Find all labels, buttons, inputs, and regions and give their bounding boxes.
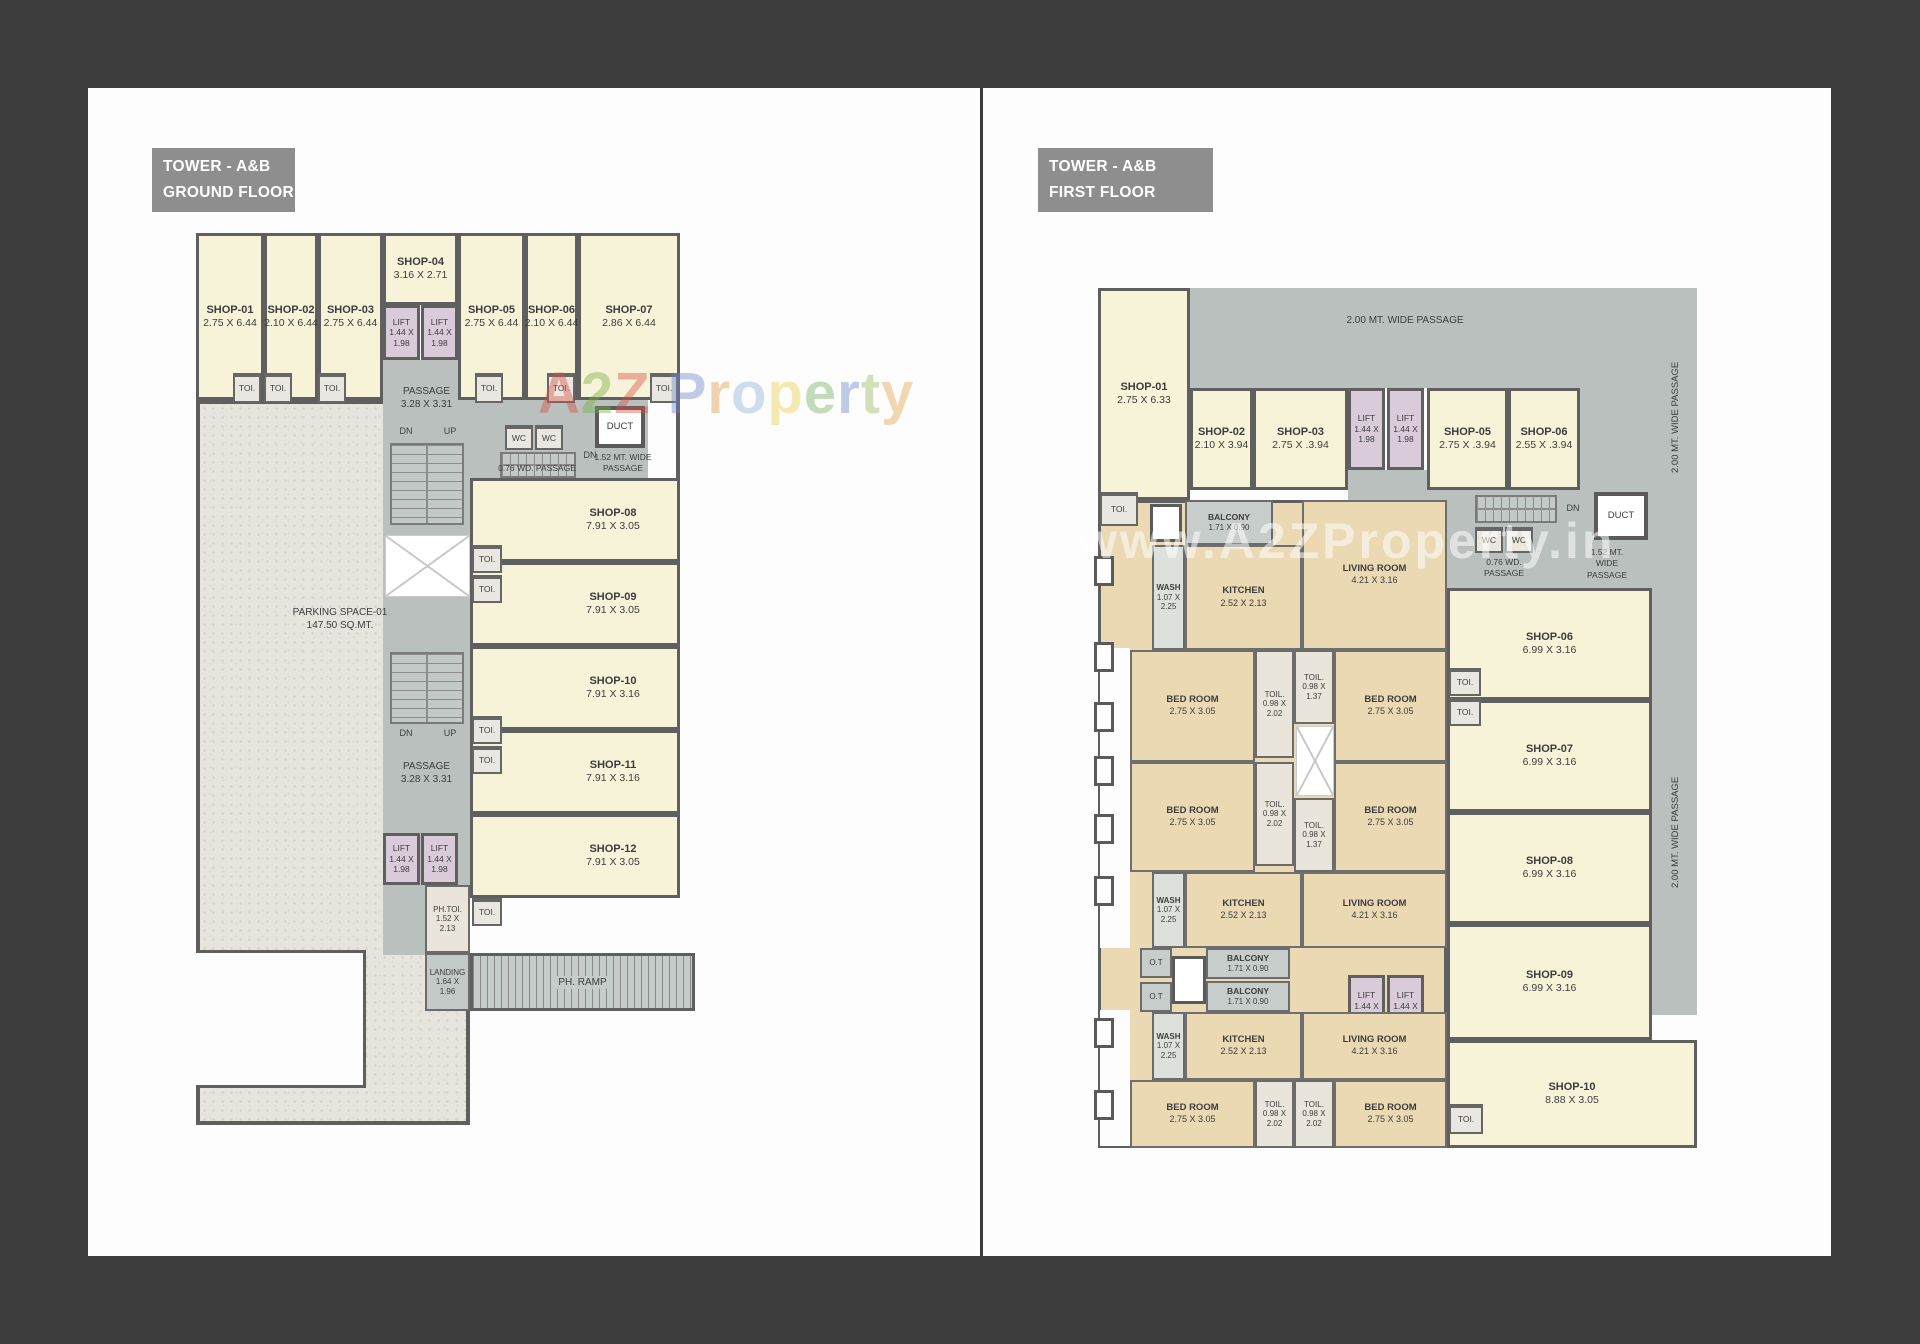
watermark-site: www.A2ZProperty.in	[1078, 512, 1615, 570]
lift-lift: LIFT1.44 X1.98	[1348, 388, 1385, 470]
wc-wc: WC	[505, 425, 533, 450]
void-36	[385, 535, 470, 597]
wbox-80	[1094, 1018, 1114, 1048]
room-dims: 6.99 X 3.16	[1523, 644, 1577, 658]
room-name: BALCONY	[1227, 986, 1269, 997]
lift-lift: LIFT1.44 X1.98	[421, 305, 458, 360]
room-name: LANDING	[430, 968, 466, 978]
room-dims: 6.99 X 3.16	[1523, 756, 1577, 770]
room-name: SHOP-06	[1526, 630, 1573, 644]
room-dims: 7.91 X 3.16	[586, 772, 640, 786]
room-dims: 1.98	[431, 338, 448, 349]
room-dims: 1.52 X	[436, 914, 459, 924]
toi-toi: TOI.	[318, 373, 346, 403]
room-name: 1.52 MT. WIDE	[594, 452, 651, 463]
room-dims: 2.02	[1267, 819, 1283, 829]
room-dims: 1.44 X	[427, 854, 452, 865]
slabel-dn: DN	[392, 728, 420, 740]
room-dims: 1.98	[1397, 434, 1414, 445]
toil-toil: TOIL.0.98 X2.02	[1255, 650, 1294, 758]
watermark-letter: Z	[614, 361, 650, 426]
notch-1	[196, 950, 366, 1088]
title-line-1: TOWER - A&B	[1049, 154, 1213, 180]
wbox-78	[1094, 814, 1114, 844]
room-name: TOI.	[239, 383, 255, 394]
room-dims: 2.55 X .3.94	[1516, 439, 1573, 453]
room-dims: 1.44 X	[1354, 1001, 1379, 1012]
room-name: TOI.	[270, 383, 286, 394]
room-name: TOIL.	[1265, 1100, 1285, 1110]
room-dims: 2.75 X 3.05	[1169, 817, 1215, 829]
room-dims: 2.02	[1306, 1119, 1322, 1129]
room-dims: 2.75 X 3.05	[1367, 706, 1413, 718]
room-name: BED ROOM	[1166, 1102, 1218, 1114]
room-name: SHOP-12	[589, 842, 636, 856]
room-name: TOI.	[1457, 677, 1473, 688]
room-name: TOI.	[1457, 707, 1473, 718]
room-living-room: LIVING ROOM4.21 X 3.16	[1302, 872, 1447, 948]
watermark-letter: y	[881, 361, 914, 426]
floor-plan-canvas: TOWER - A&B GROUND FLOOR TOWER - A&B FIR…	[0, 0, 1920, 1344]
plabel-2-00-mt-wide-passage: 2.00 MT. WIDE PASSAGE	[1240, 312, 1570, 328]
room-name: TOI.	[479, 907, 495, 918]
room-name: LIFT	[393, 843, 410, 854]
grayblk-2	[1580, 388, 1652, 490]
title-line-1: TOWER - A&B	[163, 154, 295, 180]
room-dims: 0.98 X	[1302, 830, 1325, 840]
room-name: BED ROOM	[1364, 805, 1416, 817]
toi-toi: TOI.	[264, 373, 292, 403]
room-name: TOIL.	[1265, 800, 1285, 810]
toi-toi: TOI.	[472, 575, 502, 603]
room-name: 2.00 MT. WIDE PASSAGE	[1346, 314, 1463, 327]
first-floor-title: TOWER - A&B FIRST FLOOR	[1038, 148, 1213, 212]
room-name: BED ROOM	[1166, 694, 1218, 706]
room-bed-room: BED ROOM2.75 X 3.05	[1334, 1080, 1447, 1148]
room-dims: 8.88 X 3.05	[1545, 1094, 1599, 1108]
room-name: 0.76 WD. PASSAGE	[498, 463, 576, 474]
shop-shop-03: SHOP-032.75 X .3.94	[1253, 388, 1348, 490]
room-dims: 4.21 X 3.16	[1351, 575, 1397, 587]
room-name: SHOP-10	[589, 674, 636, 688]
room-name: BALCONY	[1227, 953, 1269, 964]
ot-o-t: O.T	[1140, 982, 1172, 1012]
room-bed-room: BED ROOM2.75 X 3.05	[1130, 1080, 1255, 1148]
room-kitchen: KITCHEN2.52 X 2.13	[1185, 1012, 1302, 1080]
watermark-letter: r	[707, 361, 731, 426]
room-dims: 2.75 X 3.05	[1367, 817, 1413, 829]
room-dims: 2.25	[1161, 602, 1177, 612]
room-living-room: LIVING ROOM4.21 X 3.16	[1302, 1012, 1447, 1080]
wbox-75	[1094, 642, 1114, 672]
room-name: TOI.	[1458, 1114, 1474, 1125]
room-dims: 1.98	[393, 864, 410, 875]
room-dims: 1.44 X	[389, 327, 414, 338]
wbox-77	[1094, 756, 1114, 786]
toi-toi: TOI.	[472, 898, 502, 926]
room-dims: 2.25	[1161, 915, 1177, 925]
toi-toi: TOI.	[1449, 1104, 1483, 1134]
room-dims: 2.52 X 2.13	[1220, 598, 1266, 610]
room-dims: 1.44 X	[1393, 424, 1418, 435]
room-dims: 3.28 X 3.31	[401, 398, 452, 411]
room-name: LIFT	[431, 317, 448, 328]
room-name: LIFT	[1358, 413, 1375, 424]
room-dims: 2.75 X 3.05	[1169, 706, 1215, 718]
lift-lift: LIFT1.44 X1.98	[1387, 388, 1424, 470]
room-name: SHOP-07	[1526, 742, 1573, 756]
watermark-brand: A2Z Property	[538, 360, 914, 427]
room-bed-room: BED ROOM2.75 X 3.05	[1130, 650, 1255, 762]
room-name: PARKING SPACE-01	[293, 606, 388, 619]
room-name: TOI.	[479, 725, 495, 736]
room-bed-room: BED ROOM2.75 X 3.05	[1130, 762, 1255, 872]
shop-shop-04: SHOP-043.16 X 2.71	[383, 233, 458, 305]
room-dims: 6.99 X 3.16	[1523, 982, 1577, 996]
plabel-passage: PASSAGE3.28 X 3.31	[383, 383, 470, 413]
room-dims: 1.98	[431, 864, 448, 875]
shop-shop-01: SHOP-012.75 X 6.33	[1098, 288, 1190, 500]
stair-v-39	[390, 652, 464, 724]
watermark-letter: t	[861, 361, 881, 426]
toi-toi: TOI.	[475, 373, 503, 403]
toil-ph-toi: PH.TOI.1.52 X2.13	[425, 885, 470, 953]
watermark-letter	[651, 361, 668, 426]
room-name: TOIL.	[1304, 821, 1324, 831]
room-dims: 0.98 X	[1302, 682, 1325, 692]
room-dims: 1.71 X 0.90	[1228, 997, 1269, 1007]
room-dims: 2.13	[440, 924, 456, 934]
room-name: SHOP-01	[206, 303, 253, 317]
room-name: SHOP-05	[468, 303, 515, 317]
room-dims: 0.98 X	[1263, 809, 1286, 819]
room-name: LIFT	[1397, 413, 1414, 424]
room-name: SHOP-01	[1120, 380, 1167, 394]
room-dims: 2.75 X 6.33	[1117, 394, 1171, 408]
wc-wc: WC	[535, 425, 563, 450]
room-dims: 2.86 X 6.44	[602, 317, 656, 331]
room-dims: 147.50 SQ.MT.	[307, 619, 374, 632]
room-name: O.T	[1149, 992, 1162, 1002]
room-dims: 2.10 X 6.44	[264, 317, 318, 331]
room-dims: 1.96	[440, 987, 456, 997]
wbox-79	[1094, 876, 1114, 906]
room-name: SHOP-06	[1520, 425, 1567, 439]
wash-wash: WASH1.07 X2.25	[1152, 872, 1185, 948]
grayblk2-landing: LANDING1.64 X1.96	[425, 953, 470, 1011]
room-name: TOI.	[481, 383, 497, 394]
room-dims: 1.98	[1358, 434, 1375, 445]
room-name: WASH	[1157, 583, 1181, 593]
room-dims: 1.44 X	[1354, 424, 1379, 435]
ot-o-t: O.T	[1140, 948, 1172, 978]
room-dims: 2.52 X 2.13	[1220, 910, 1266, 922]
room-name: SHOP-06	[528, 303, 575, 317]
watermark-letter: p	[767, 361, 803, 426]
toi-toi: TOI.	[472, 716, 502, 744]
room-name: LIFT	[431, 843, 448, 854]
room-name: SHOP-08	[1526, 854, 1573, 868]
room-dims: 2.75 X .3.94	[1272, 439, 1329, 453]
ground-floor-title: TOWER - A&B GROUND FLOOR	[152, 148, 295, 212]
room-name: DN	[400, 728, 413, 740]
room-dims: 1.44 X	[1393, 1001, 1418, 1012]
room-dims: 2.75 X 6.44	[465, 317, 519, 331]
toil-toil: TOIL.0.98 X2.02	[1255, 762, 1294, 866]
toi-toi: TOI.	[472, 545, 502, 573]
room-dims: 1.44 X	[389, 854, 414, 865]
toi-toi: TOI.	[1449, 698, 1481, 726]
room-dims: 7.91 X 3.05	[586, 604, 640, 618]
room-name: TOIL.	[1265, 690, 1285, 700]
room-name: WASH	[1157, 896, 1181, 906]
room-name: PH.TOI.	[433, 905, 462, 915]
toi-toi: TOI.	[233, 373, 261, 403]
slabel-up: UP	[436, 426, 464, 438]
toil-toil: TOIL.0.98 X1.37	[1294, 650, 1334, 724]
room-dims: 7.91 X 3.05	[586, 520, 640, 534]
room-name: SHOP-05	[1444, 425, 1491, 439]
lift-lift: LIFT1.44 X1.98	[383, 833, 420, 885]
room-dims: 1.07 X	[1157, 1041, 1180, 1051]
ramp-ph-ramp: PH. RAMP	[470, 953, 695, 1011]
flabel3-1-52-mt-wide: 1.52 MT. WIDEPASSAGE	[584, 450, 662, 476]
room-dims: 1.37	[1306, 692, 1322, 702]
room-name: TOI.	[324, 383, 340, 394]
room-name: SHOP-10	[1548, 1080, 1595, 1094]
room-dims: 2.75 X 6.44	[324, 317, 378, 331]
room-dims: 2.75 X 6.44	[203, 317, 257, 331]
room-dims: 3.16 X 2.71	[394, 269, 448, 283]
room-name: LIFT	[393, 317, 410, 328]
room-dims: 1.07 X	[1157, 593, 1180, 603]
wbox-64	[1172, 956, 1206, 1004]
room-dims: 2.75 X 3.05	[1169, 1114, 1215, 1126]
watermark-letter: r	[837, 361, 861, 426]
room-dims: 2.75 X .3.94	[1439, 439, 1496, 453]
balcony-balcony: BALCONY1.71 X 0.90	[1206, 948, 1290, 979]
room-dims: 1.98	[393, 338, 410, 349]
toil-toil: TOIL.0.98 X1.37	[1294, 798, 1334, 872]
room-name: SHOP-07	[605, 303, 652, 317]
room-dims: 2.02	[1267, 709, 1283, 719]
shop-shop-06: SHOP-062.55 X .3.94	[1508, 388, 1580, 490]
shop-shop-10: SHOP-108.88 X 3.05	[1447, 1040, 1697, 1148]
watermark-letter: A	[538, 361, 581, 426]
room-dims: 7.91 X 3.05	[586, 856, 640, 870]
room-name: PH. RAMP	[554, 976, 610, 989]
room-dims: 1.37	[1306, 840, 1322, 850]
room-dims: 2.10 X 3.94	[1195, 439, 1249, 453]
room-dims: 2.52 X 2.13	[1220, 1046, 1266, 1058]
shop-shop-09: SHOP-096.99 X 3.16	[1447, 924, 1652, 1040]
watermark-letter: o	[731, 361, 767, 426]
room-name: BED ROOM	[1364, 694, 1416, 706]
room-name: TOI.	[479, 554, 495, 565]
room-dims: 2.02	[1267, 1119, 1283, 1129]
room-dims: 1.64 X	[436, 977, 459, 987]
room-name: SHOP-09	[589, 590, 636, 604]
toi-toi: TOI.	[472, 746, 502, 774]
watermark-letter: 2	[581, 361, 614, 426]
room-dims: 4.21 X 3.16	[1351, 1046, 1397, 1058]
toil-toil: TOIL.0.98 X2.02	[1255, 1080, 1294, 1148]
plabel-passage: PASSAGE3.28 X 3.31	[383, 758, 470, 788]
flabel-0-76-wd-passage: 0.76 WD. PASSAGE	[487, 463, 587, 475]
room-name: SHOP-03	[327, 303, 374, 317]
room-name: SHOP-02	[267, 303, 314, 317]
shopR-shop-12: SHOP-127.91 X 3.05	[470, 814, 680, 898]
room-name: WC	[512, 433, 526, 444]
room-kitchen: KITCHEN2.52 X 2.13	[1185, 872, 1302, 948]
shop-shop-05: SHOP-052.75 X .3.94	[1427, 388, 1508, 490]
room-name: 2.00 MT. WIDE PASSAGE	[1670, 777, 1682, 888]
room-name: SHOP-11	[590, 758, 636, 772]
title-line-2: GROUND FLOOR	[163, 180, 295, 206]
room-dims: 1.07 X	[1157, 905, 1180, 915]
room-name: SHOP-02	[1198, 425, 1245, 439]
room-dims: 7.91 X 3.16	[586, 688, 640, 702]
room-name: LIVING ROOM	[1343, 1034, 1407, 1046]
room-name: UP	[444, 728, 457, 740]
toil-toil: TOIL.0.98 X2.02	[1294, 1080, 1334, 1148]
room-dims: 0.98 X	[1302, 1109, 1325, 1119]
room-dims: 2.10 X 6.44	[525, 317, 579, 331]
room-bed-room: BED ROOM2.75 X 3.05	[1334, 650, 1447, 762]
vlabel-2-00-mt-wide-passage: 2.00 MT. WIDE PASSAGE	[1661, 325, 1691, 510]
room-name: LIFT	[1397, 990, 1414, 1001]
room-dims: 2.75 X 3.05	[1367, 1114, 1413, 1126]
room-name: SHOP-09	[1526, 968, 1573, 982]
room-name: LIFT	[1358, 990, 1375, 1001]
room-name: TOIL.	[1304, 1100, 1324, 1110]
room-dims: 3.28 X 3.31	[401, 773, 452, 786]
plabel-parking-space-01: PARKING SPACE-01147.50 SQ.MT.	[225, 602, 455, 636]
room-name: DN	[400, 426, 413, 438]
room-name: PASSAGE	[403, 385, 450, 398]
room-name: SHOP-08	[589, 506, 636, 520]
room-name: WC	[542, 433, 556, 444]
room-name: SHOP-04	[397, 255, 444, 269]
room-name: TOI.	[479, 755, 495, 766]
room-name: UP	[444, 426, 457, 438]
room-dims: 0.98 X	[1263, 699, 1286, 709]
room-name: KITCHEN	[1222, 898, 1264, 910]
room-name: BED ROOM	[1166, 805, 1218, 817]
room-name: KITCHEN	[1222, 585, 1264, 597]
shop-shop-08: SHOP-086.99 X 3.16	[1447, 812, 1652, 924]
room-name: TOIL.	[1304, 673, 1324, 683]
slabel-up: UP	[436, 728, 464, 740]
grayblk-0	[1190, 288, 1697, 388]
balcony-balcony: BALCONY1.71 X 0.90	[1206, 981, 1290, 1012]
watermark-letter: e	[804, 361, 837, 426]
room-name: PASSAGE	[403, 760, 450, 773]
room-name: 2.00 MT. WIDE PASSAGE	[1670, 362, 1682, 473]
wbox-76	[1094, 702, 1114, 732]
room-bed-room: BED ROOM2.75 X 3.05	[1334, 762, 1447, 872]
wbox-81	[1094, 1090, 1114, 1120]
room-dims: PASSAGE	[603, 463, 643, 474]
room-dims: 2.25	[1161, 1051, 1177, 1061]
room-name: LIVING ROOM	[1343, 898, 1407, 910]
room-name: KITCHEN	[1222, 1034, 1264, 1046]
room-dims: 6.99 X 3.16	[1523, 868, 1577, 882]
shop-shop-02: SHOP-022.10 X 3.94	[1190, 388, 1253, 490]
room-dims: 0.98 X	[1263, 1109, 1286, 1119]
lift-lift: LIFT1.44 X1.98	[383, 305, 420, 360]
room-name: WASH	[1157, 1032, 1181, 1042]
room-name: SHOP-03	[1277, 425, 1324, 439]
room-dims: 1.44 X	[427, 327, 452, 338]
lift-lift: LIFT1.44 X1.98	[421, 833, 458, 885]
void-54	[1296, 726, 1334, 796]
room-name: TOI.	[479, 584, 495, 595]
watermark-letter: P	[668, 361, 708, 426]
toi-toi: TOI.	[1449, 668, 1481, 696]
stair-v-35	[390, 443, 464, 525]
wash-wash: WASH1.07 X2.25	[1152, 1012, 1185, 1080]
room-dims: 4.21 X 3.16	[1351, 910, 1397, 922]
room-dims: PASSAGE	[1587, 570, 1627, 581]
vlabel-2-00-mt-wide-passage: 2.00 MT. WIDE PASSAGE	[1661, 740, 1691, 925]
room-dims: 1.71 X 0.90	[1228, 964, 1269, 974]
room-name: BED ROOM	[1364, 1102, 1416, 1114]
slabel-dn: DN	[392, 426, 420, 438]
room-name: O.T	[1149, 958, 1162, 968]
title-line-2: FIRST FLOOR	[1049, 180, 1213, 206]
